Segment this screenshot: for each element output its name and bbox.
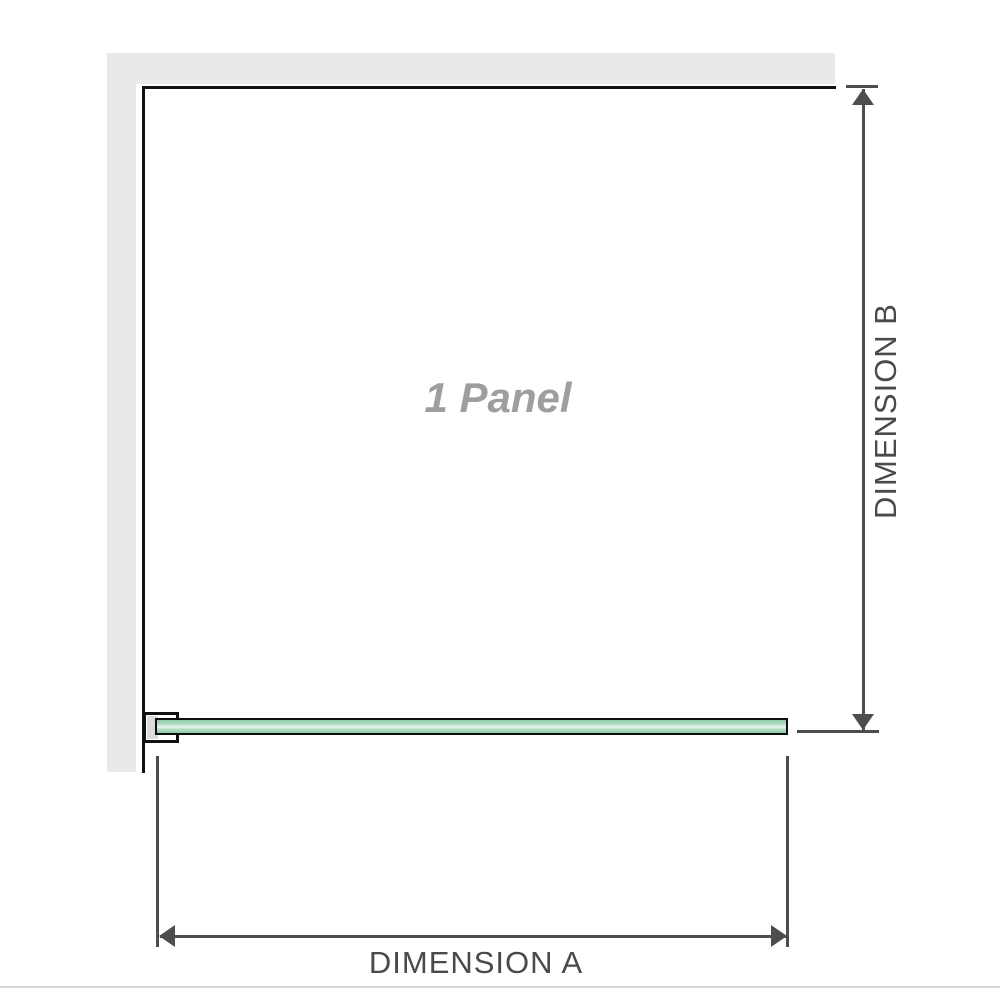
wall-top-band	[107, 53, 835, 84]
dimension-b-line	[862, 89, 865, 730]
glass-panel-bar	[155, 718, 788, 735]
diagram-canvas: 1 Panel DIMENSION B DIMENSION A	[0, 0, 1000, 1000]
dimension-a-line	[160, 935, 787, 938]
dimension-a-extension-right	[786, 756, 789, 947]
dimension-a-extension-left	[156, 756, 159, 947]
arrow-right-icon	[771, 925, 787, 947]
frame-left-line	[142, 86, 145, 773]
photo-edge-line	[0, 986, 1000, 988]
arrow-down-icon	[852, 714, 874, 730]
wall-left-band	[107, 53, 136, 772]
frame-top-line	[142, 86, 836, 89]
dimension-a-label: DIMENSION A	[369, 945, 583, 981]
dimension-b-bottom-tick	[797, 730, 879, 733]
panel-label: 1 Panel	[424, 374, 571, 422]
arrow-left-icon	[159, 925, 175, 947]
arrow-up-icon	[852, 89, 874, 105]
dimension-b-label: DIMENSION B	[868, 303, 904, 519]
dimension-b-top-tick	[846, 85, 878, 88]
